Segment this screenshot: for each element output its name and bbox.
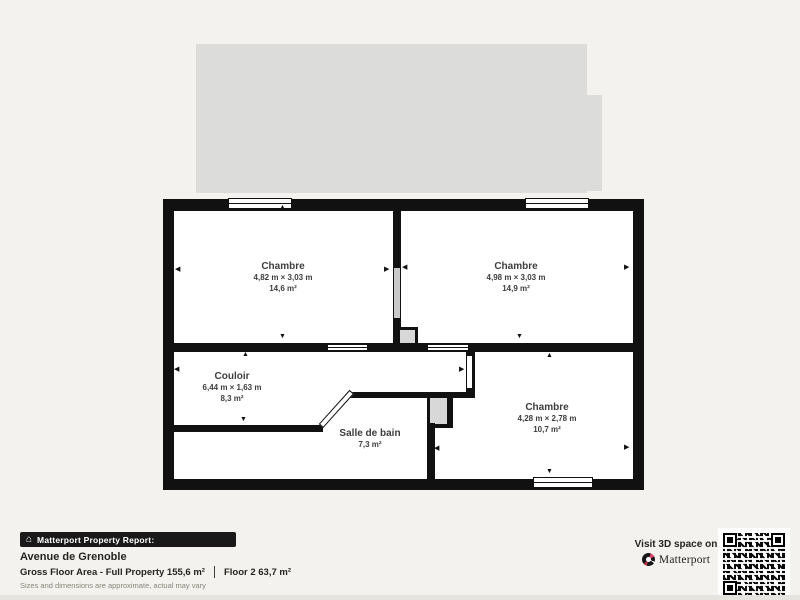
room-area: 14,9 m²: [487, 284, 546, 295]
room-area: 14,6 m²: [254, 284, 313, 295]
dimension-arrow-icon: ▼: [516, 333, 523, 340]
report-badge: ⌂ Matterport Property Report:: [20, 532, 236, 547]
room-dimensions: 6,44 m × 1,63 m: [203, 383, 262, 394]
visit-3d-label: Visit 3D space on: [628, 539, 724, 550]
dimension-arrow-icon: ◀: [402, 264, 407, 271]
matterport-brand: Matterport: [628, 553, 724, 566]
window: [533, 477, 593, 488]
door-opening: [394, 268, 400, 318]
wall-hall-bottom-left: [174, 425, 323, 432]
shaft-bath-fill: [430, 398, 447, 424]
floor-area: Floor 2 63,7 m²: [224, 567, 291, 578]
room-area: 7,3 m²: [339, 440, 400, 451]
room-dimensions: 4,82 m × 3,03 m: [254, 273, 313, 284]
adjacent-floor-outline-step: [587, 95, 602, 191]
dimension-arrow-icon: ▲: [546, 352, 553, 359]
room-name: Chambre: [487, 261, 546, 273]
qr-finder-icon: [771, 533, 785, 547]
room-name: Salle de bain: [339, 428, 400, 440]
area-stats: Gross Floor Area - Full Property 155,6 m…: [20, 566, 291, 578]
wall-hall-bottom-right: [347, 392, 475, 398]
dimension-arrow-icon: ▶: [459, 366, 464, 373]
house-icon: ⌂: [26, 535, 32, 545]
door-leaf: [466, 355, 473, 389]
property-address: Avenue de Grenoble: [20, 551, 127, 563]
dimension-arrow-icon: ▶: [384, 266, 389, 273]
room-name: Chambre: [518, 402, 577, 414]
dimension-arrow-icon: ▼: [279, 333, 286, 340]
room-label-bedroom-1: Chambre 4,82 m × 3,03 m 14,6 m²: [254, 261, 313, 294]
qr-finder-icon: [723, 581, 737, 595]
room-label-bedroom-2: Chambre 4,98 m × 3,03 m 14,9 m²: [487, 261, 546, 294]
room-area: 8,3 m²: [203, 394, 262, 405]
disclaimer-text: Sizes and dimensions are approximate, ac…: [20, 581, 206, 590]
gross-floor-area: Gross Floor Area - Full Property 155,6 m…: [20, 567, 205, 578]
dimension-arrow-icon: ▼: [240, 416, 247, 423]
visit-3d-link[interactable]: Visit 3D space on Matterport: [628, 539, 724, 566]
adjacent-floor-outline: [196, 44, 587, 193]
qr-code[interactable]: [718, 528, 790, 600]
room-area: 10,7 m²: [518, 425, 577, 436]
dimension-arrow-icon: ▼: [546, 468, 553, 475]
room-label-hallway: Couloir 6,44 m × 1,63 m 8,3 m²: [203, 371, 262, 404]
matterport-wordmark: Matterport: [659, 554, 710, 566]
dimension-arrow-icon: ▲: [242, 351, 249, 358]
room-label-bedroom-3: Chambre 4,28 m × 2,78 m 10,7 m²: [518, 402, 577, 435]
dimension-arrow-icon: ◀: [175, 266, 180, 273]
stat-divider: [214, 566, 215, 578]
interior-opening: [427, 344, 469, 351]
room-name: Couloir: [203, 371, 262, 383]
dimension-arrow-icon: ◀: [434, 445, 439, 452]
room-dimensions: 4,98 m × 3,03 m: [487, 273, 546, 284]
dimension-arrow-icon: ◀: [174, 366, 179, 373]
dimension-arrow-icon: ▶: [624, 444, 629, 451]
room-dimensions: 4,28 m × 2,78 m: [518, 414, 577, 425]
dimension-arrow-icon: ▲: [513, 204, 520, 211]
page-bottom-edge: [0, 595, 800, 600]
dimension-arrow-icon: ▶: [624, 264, 629, 271]
matterport-logo-icon: [642, 553, 655, 566]
report-badge-label: Matterport Property Report:: [37, 535, 154, 545]
room-name: Chambre: [254, 261, 313, 273]
floorplan-report-page: ▲ ▼ ◀ ▶ ▲ ▼ ◀ ▶ ▲ ▼ ◀ ▶ ▲ ▼ ◀ ▶ Chambre …: [0, 0, 800, 600]
room-label-bathroom: Salle de bain 7,3 m²: [339, 428, 400, 451]
interior-opening: [327, 344, 368, 351]
qr-finder-icon: [723, 533, 737, 547]
dimension-arrow-icon: ▲: [279, 204, 286, 211]
window: [525, 198, 589, 209]
